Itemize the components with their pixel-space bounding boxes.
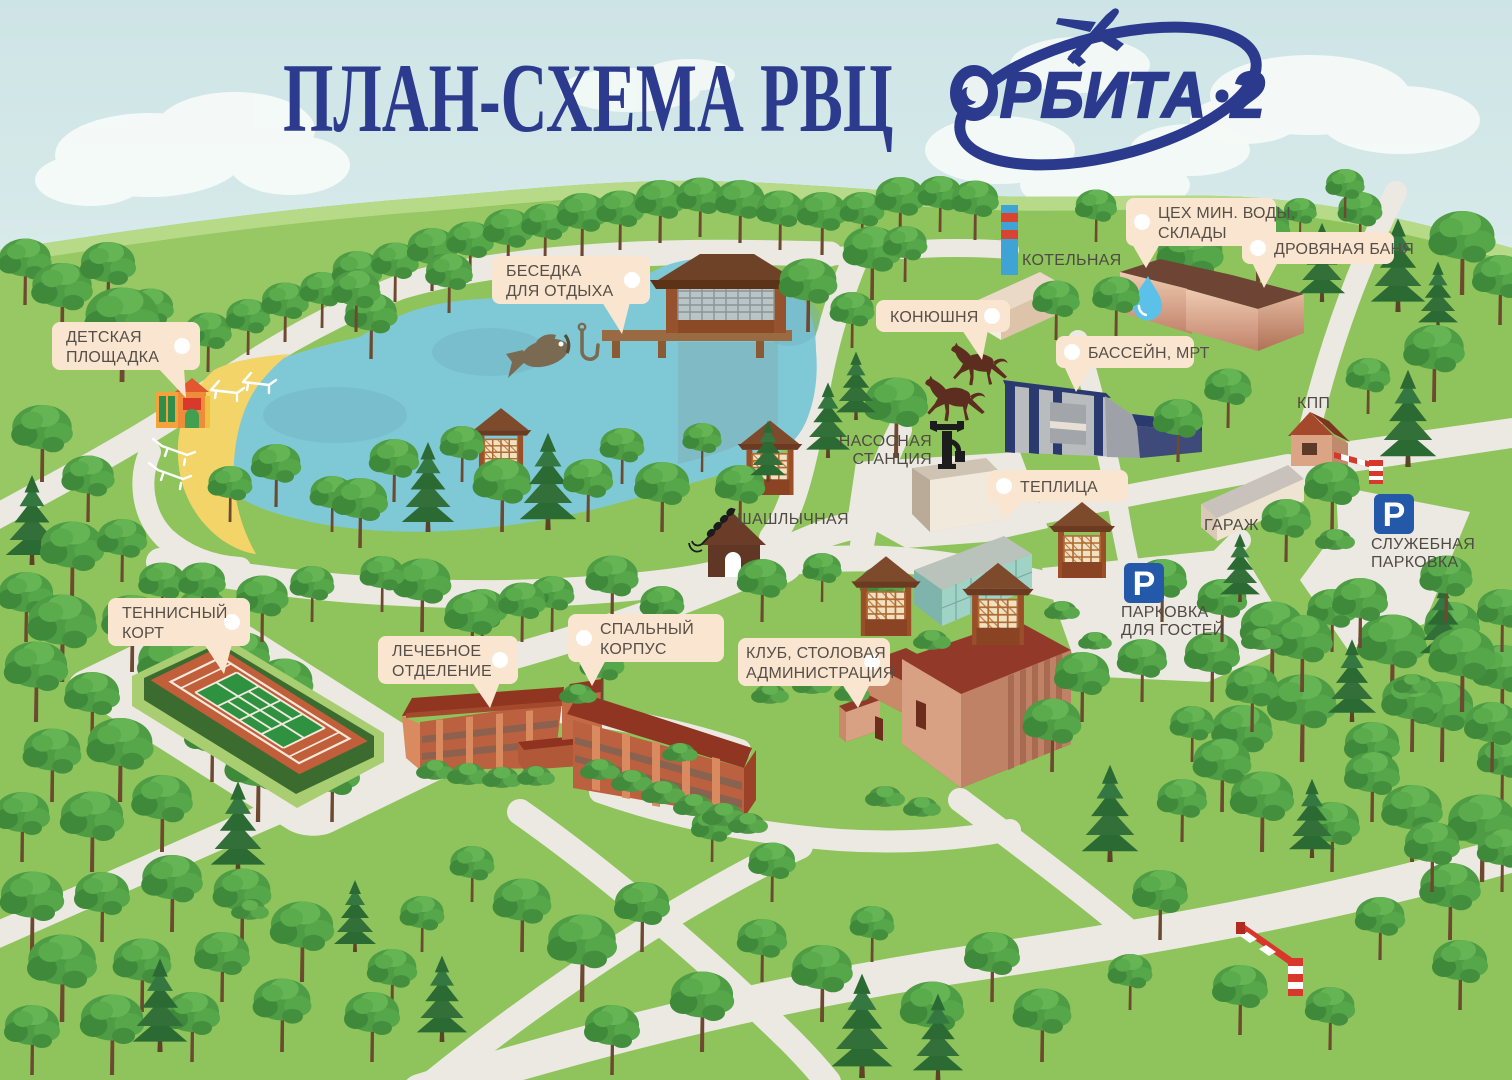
svg-text:ОТДЕЛЕНИЕ: ОТДЕЛЕНИЕ	[392, 663, 492, 680]
svg-text:ДЕТСКАЯ: ДЕТСКАЯ	[66, 329, 142, 346]
svg-text:КПП: КПП	[1297, 395, 1330, 412]
svg-text:СТАНЦИЯ: СТАНЦИЯ	[853, 451, 932, 468]
svg-text:P: P	[1383, 496, 1406, 534]
svg-text:СПАЛЬНЫЙ: СПАЛЬНЫЙ	[600, 619, 694, 638]
svg-text:ПЛАН-СХЕМА РВЦ: ПЛАН-СХЕМА РВЦ	[283, 43, 893, 153]
svg-text:РБИТА: РБИТА	[1000, 60, 1206, 132]
svg-text:ПАРКОВКА: ПАРКОВКА	[1121, 604, 1209, 621]
svg-text:КОТЕЛЬНАЯ: КОТЕЛЬНАЯ	[1022, 252, 1122, 269]
svg-text:СЛУЖЕБНАЯ: СЛУЖЕБНАЯ	[1371, 536, 1475, 553]
svg-text:КОНЮШНЯ: КОНЮШНЯ	[890, 309, 978, 326]
svg-text:КОРТ: КОРТ	[122, 625, 164, 642]
svg-text:ПАРКОВКА: ПАРКОВКА	[1371, 554, 1459, 571]
svg-text:ГАРАЖ: ГАРАЖ	[1204, 517, 1259, 534]
svg-text:ЦЕХ МИН. ВОДЫ,: ЦЕХ МИН. ВОДЫ,	[1158, 205, 1295, 222]
svg-text:ШАШЛЫЧНАЯ: ШАШЛЫЧНАЯ	[737, 511, 849, 528]
svg-text:ДЛЯ ОТДЫХА: ДЛЯ ОТДЫХА	[506, 283, 613, 300]
svg-text:СКЛАДЫ: СКЛАДЫ	[1158, 225, 1227, 242]
svg-text:ЛЕЧЕБНОЕ: ЛЕЧЕБНОЕ	[392, 643, 481, 660]
svg-text:БЕСЕДКА: БЕСЕДКА	[506, 263, 582, 280]
svg-text:БАССЕЙН, МРТ: БАССЕЙН, МРТ	[1088, 343, 1210, 362]
svg-text:АДМИНИСТРАЦИЯ: АДМИНИСТРАЦИЯ	[746, 665, 894, 682]
svg-text:ДРОВЯНАЯ БАНЯ: ДРОВЯНАЯ БАНЯ	[1274, 241, 1414, 258]
svg-text:ТЕННИСНЫЙ: ТЕННИСНЫЙ	[122, 603, 228, 622]
svg-text:ПЛОЩАДКА: ПЛОЩАДКА	[66, 349, 159, 366]
svg-text:КОРПУС: КОРПУС	[600, 641, 667, 658]
svg-text:КЛУБ, СТОЛОВАЯ: КЛУБ, СТОЛОВАЯ	[746, 645, 886, 662]
svg-text:P: P	[1133, 565, 1156, 603]
svg-text:2: 2	[1230, 60, 1265, 132]
svg-text:НАСОСНАЯ: НАСОСНАЯ	[839, 433, 932, 450]
svg-text:ТЕПЛИЦА: ТЕПЛИЦА	[1020, 479, 1098, 496]
svg-text:ДЛЯ ГОСТЕЙ: ДЛЯ ГОСТЕЙ	[1121, 620, 1225, 639]
